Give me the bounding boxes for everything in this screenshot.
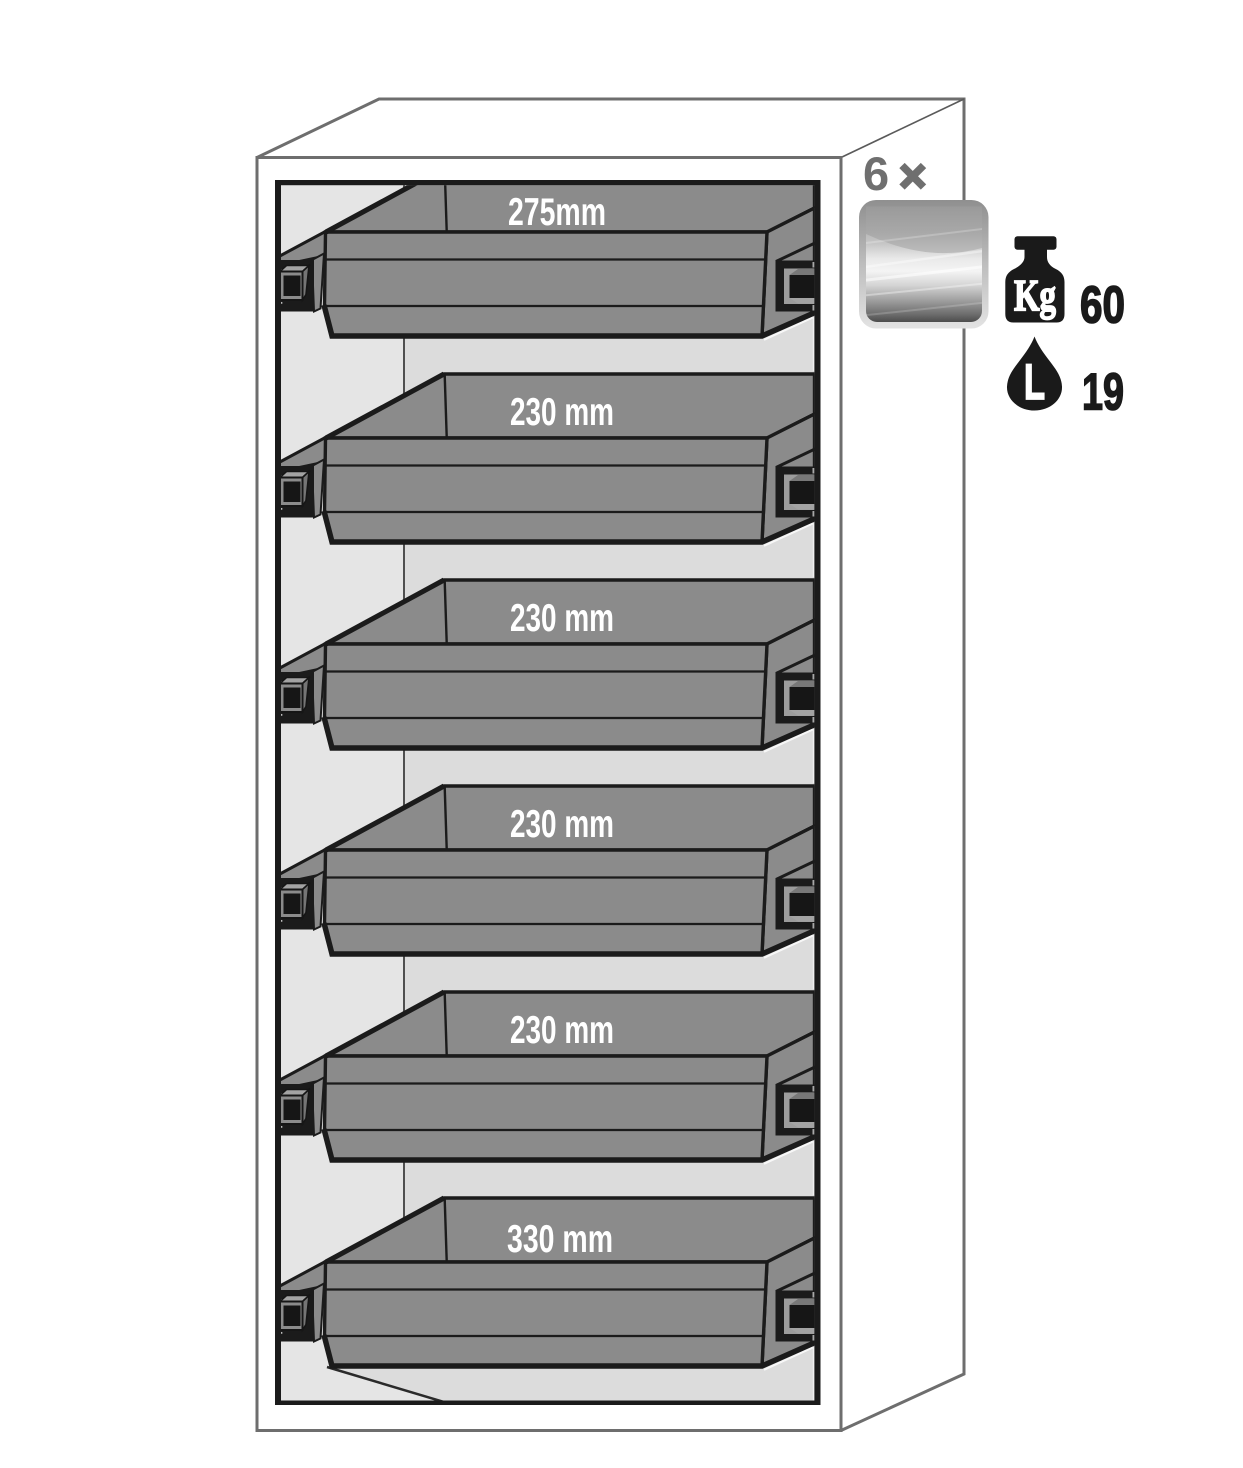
- svg-text:230 mm: 230 mm: [510, 391, 614, 434]
- svg-text:230 mm: 230 mm: [510, 803, 614, 846]
- svg-text:60: 60: [1080, 277, 1125, 335]
- svg-text:230 mm: 230 mm: [510, 1009, 614, 1052]
- svg-text:330 mm: 330 mm: [507, 1218, 613, 1261]
- svg-text:230 mm: 230 mm: [510, 597, 614, 640]
- svg-text:L: L: [1024, 354, 1045, 410]
- svg-text:275mm: 275mm: [508, 191, 606, 234]
- svg-text:19: 19: [1082, 364, 1124, 422]
- svg-text:Kg: Kg: [1014, 271, 1056, 320]
- svg-text:6: 6: [863, 147, 889, 200]
